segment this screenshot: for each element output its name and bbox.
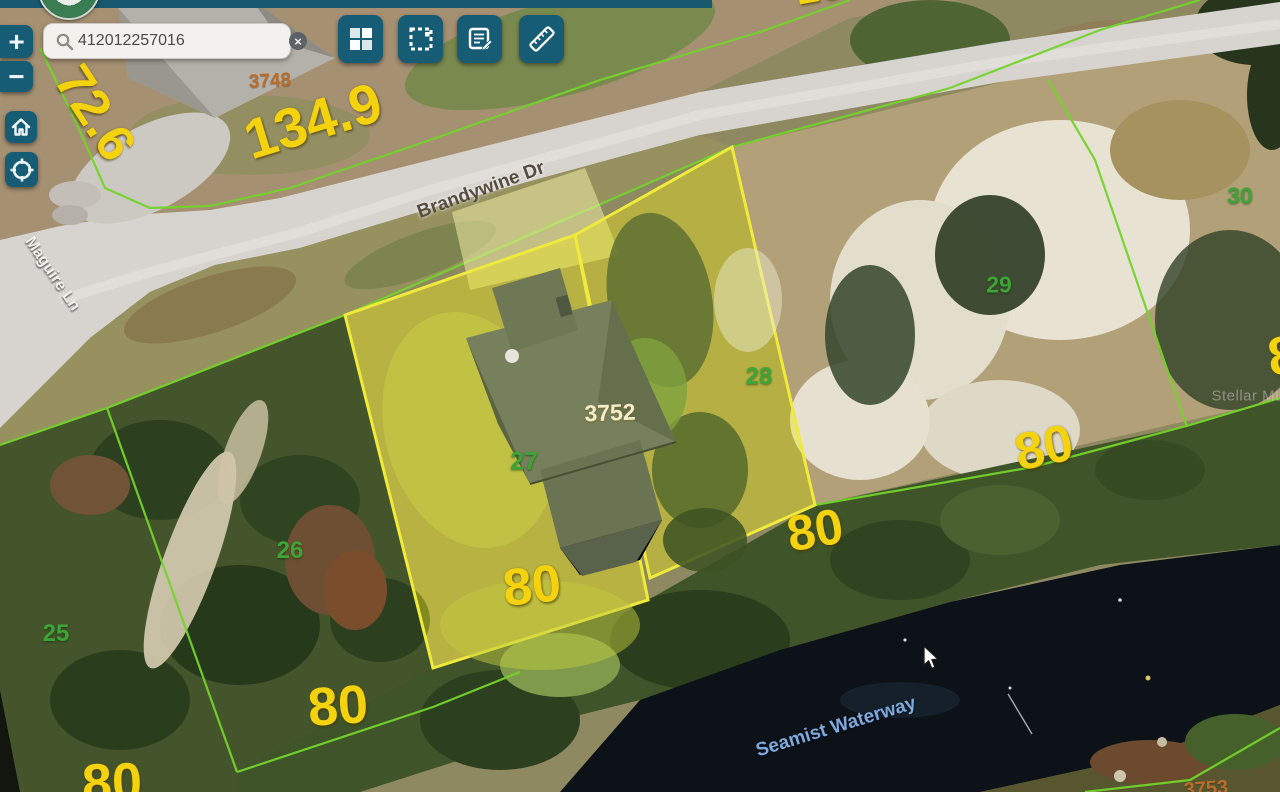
select-extent-button[interactable] [398, 15, 443, 63]
my-location-button[interactable] [5, 152, 38, 187]
crosshair-icon [9, 157, 35, 183]
select-extent-icon [407, 25, 435, 53]
parcel-search-bar[interactable]: × [43, 23, 291, 59]
zoom-in-label: + [8, 26, 24, 58]
home-extent-button[interactable] [5, 111, 37, 143]
basemap-gallery-button[interactable] [338, 15, 383, 63]
top-bar [0, 0, 712, 8]
zoom-out-label: − [8, 61, 24, 93]
gis-map-viewer: 72.6134.9163748Brandywine DrMaguire Ln25… [0, 0, 1280, 792]
home-icon [9, 115, 33, 139]
aerial-basemap[interactable] [0, 0, 1280, 792]
mouse-cursor [922, 645, 942, 672]
search-icon [55, 32, 74, 51]
search-input[interactable] [74, 32, 289, 50]
clear-search-button[interactable]: × [289, 32, 307, 50]
ruler-icon [527, 24, 557, 54]
zoom-in-button[interactable]: + [0, 25, 33, 58]
measure-button[interactable] [519, 15, 564, 63]
basemap-grid-icon [348, 26, 374, 52]
edit-notes-button[interactable] [457, 15, 502, 63]
notes-pencil-icon [466, 25, 494, 53]
zoom-out-button[interactable]: − [0, 61, 33, 92]
